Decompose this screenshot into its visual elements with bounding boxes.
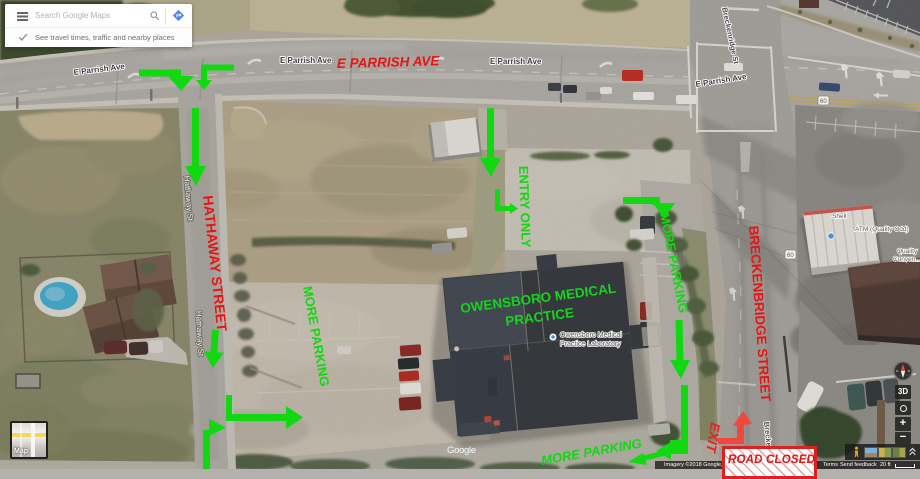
svg-text:Conven...: Conven...: [893, 256, 920, 263]
svg-text:60: 60: [787, 253, 794, 259]
svg-text:Shell: Shell: [832, 213, 847, 220]
svg-text:ATM (Quality Odd): ATM (Quality Odd): [855, 226, 909, 233]
svg-text:Quality: Quality: [897, 248, 918, 255]
svg-text:E Parrish Ave: E Parrish Ave: [280, 56, 332, 65]
svg-text:Practice Laboratory: Practice Laboratory: [560, 341, 621, 348]
svg-text:Owensboro Medical: Owensboro Medical: [560, 332, 622, 339]
svg-text:E Parrish Ave: E Parrish Ave: [490, 57, 542, 66]
svg-text:60: 60: [820, 99, 827, 105]
svg-text:Google: Google: [447, 445, 476, 456]
svg-text:ENTRY ONLY: ENTRY ONLY: [516, 166, 534, 249]
svg-text:E PARRISH AVE: E PARRISH AVE: [337, 53, 441, 71]
